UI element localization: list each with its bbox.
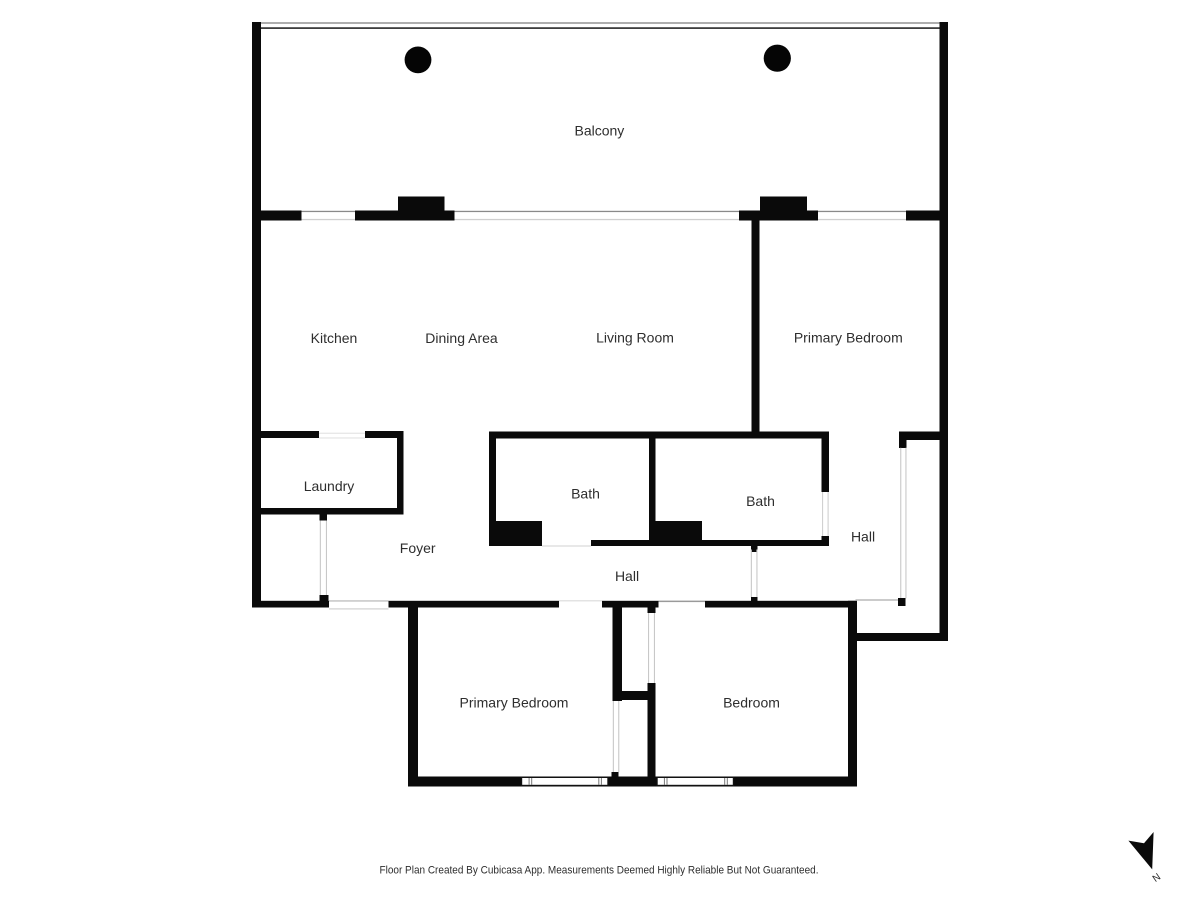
svg-text:Dining Area: Dining Area [425,330,498,346]
svg-text:Primary Bedroom: Primary Bedroom [794,330,903,346]
svg-text:Primary Bedroom: Primary Bedroom [460,694,569,710]
svg-text:Hall: Hall [615,568,639,584]
svg-text:Foyer: Foyer [400,540,436,556]
svg-text:Bedroom: Bedroom [723,694,780,710]
svg-text:Kitchen: Kitchen [311,330,358,346]
svg-text:Living Room: Living Room [596,330,674,346]
svg-text:Balcony: Balcony [574,122,624,138]
svg-text:Bath: Bath [571,486,600,502]
svg-text:Laundry: Laundry [304,478,355,494]
svg-text:Floor Plan Created By Cubicasa: Floor Plan Created By Cubicasa App. Meas… [380,865,819,877]
svg-text:Hall: Hall [851,529,875,545]
svg-text:Bath: Bath [746,493,775,509]
